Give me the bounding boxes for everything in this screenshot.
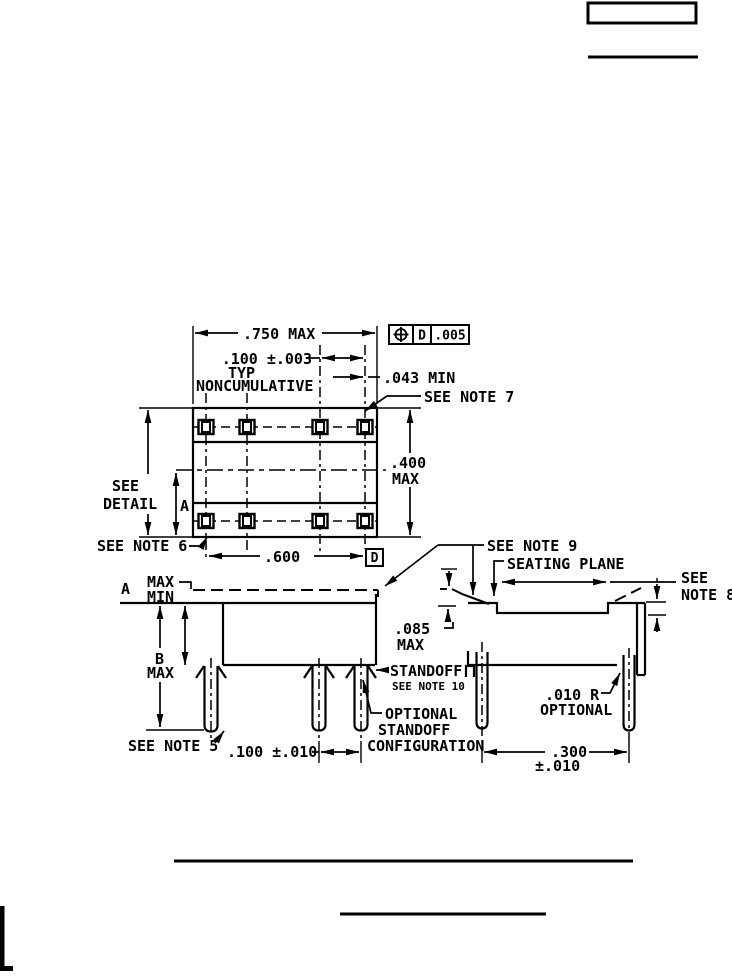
dim-a-label: A: [121, 580, 130, 598]
dim-100-bottom-label: .100 ±.010: [227, 743, 317, 761]
dim-043-label: .043 MIN: [383, 369, 455, 387]
note9-label: SEE NOTE 9: [487, 537, 577, 555]
feature-control-frame: D .005: [389, 325, 469, 344]
note5-label: SEE NOTE 5: [128, 737, 218, 755]
title-box: [588, 3, 696, 23]
datum-d-label: D: [371, 551, 379, 566]
standoff-label: STANDOFF: [390, 662, 462, 680]
note8-label-line2: NOTE 8: [681, 586, 732, 604]
dim-750-label: .750 MAX: [243, 325, 315, 343]
dim-400-suffix-label: MAX: [392, 470, 419, 488]
note10-label: SEE NOTE 10: [392, 680, 465, 693]
optional-standoff-label-line3: CONFIGURATION: [367, 737, 484, 755]
dim-600-label: .600: [264, 548, 300, 566]
note6-label: SEE NOTE 6: [97, 537, 187, 555]
see-detail-label-line1: SEE: [112, 477, 139, 495]
see-detail-letter: A: [180, 497, 189, 515]
drawing-page: .750 MAX D .005 .100 ±.003 TYP NONCUMULA…: [0, 0, 732, 979]
side-view-pins: [205, 658, 368, 741]
dim-100-noncum-label: NONCUMULATIVE: [196, 377, 313, 395]
sheet-marks: [0, 3, 698, 971]
dim-a-min-label: MIN: [147, 588, 174, 606]
radius-label-line2: OPTIONAL: [540, 701, 612, 719]
note7-label: SEE NOTE 7: [424, 388, 514, 406]
fcf-tolerance-label: .005: [434, 329, 465, 344]
see-detail-label-line2: DETAIL: [103, 495, 157, 513]
top-view-dimensions: .750 MAX D .005 .100 ±.003 TYP NONCUMULA…: [97, 325, 514, 566]
note8-label-line1: SEE: [681, 569, 708, 587]
dim-085-suffix-label: MAX: [397, 636, 424, 654]
seating-plane-profile: [468, 603, 645, 613]
dim-b-max-label: MAX: [147, 664, 174, 682]
seated-lead-profile: [637, 603, 645, 675]
position-symbol-icon: [394, 327, 409, 342]
fcf-datum-label: D: [418, 329, 426, 344]
corner-mark-horizontal: [0, 966, 13, 971]
engineering-drawing: .750 MAX D .005 .100 ±.003 TYP NONCUMULA…: [0, 0, 732, 979]
side-view-dimensions: A MAX MIN B MAX SEE NOTE 9 SEATING PLANE…: [121, 537, 732, 775]
seating-plane-label: SEATING PLANE: [507, 555, 624, 573]
corner-mark-vertical: [0, 906, 5, 968]
standoff-flares: [196, 666, 376, 678]
dim-300-tol-label: ±.010: [535, 757, 580, 775]
